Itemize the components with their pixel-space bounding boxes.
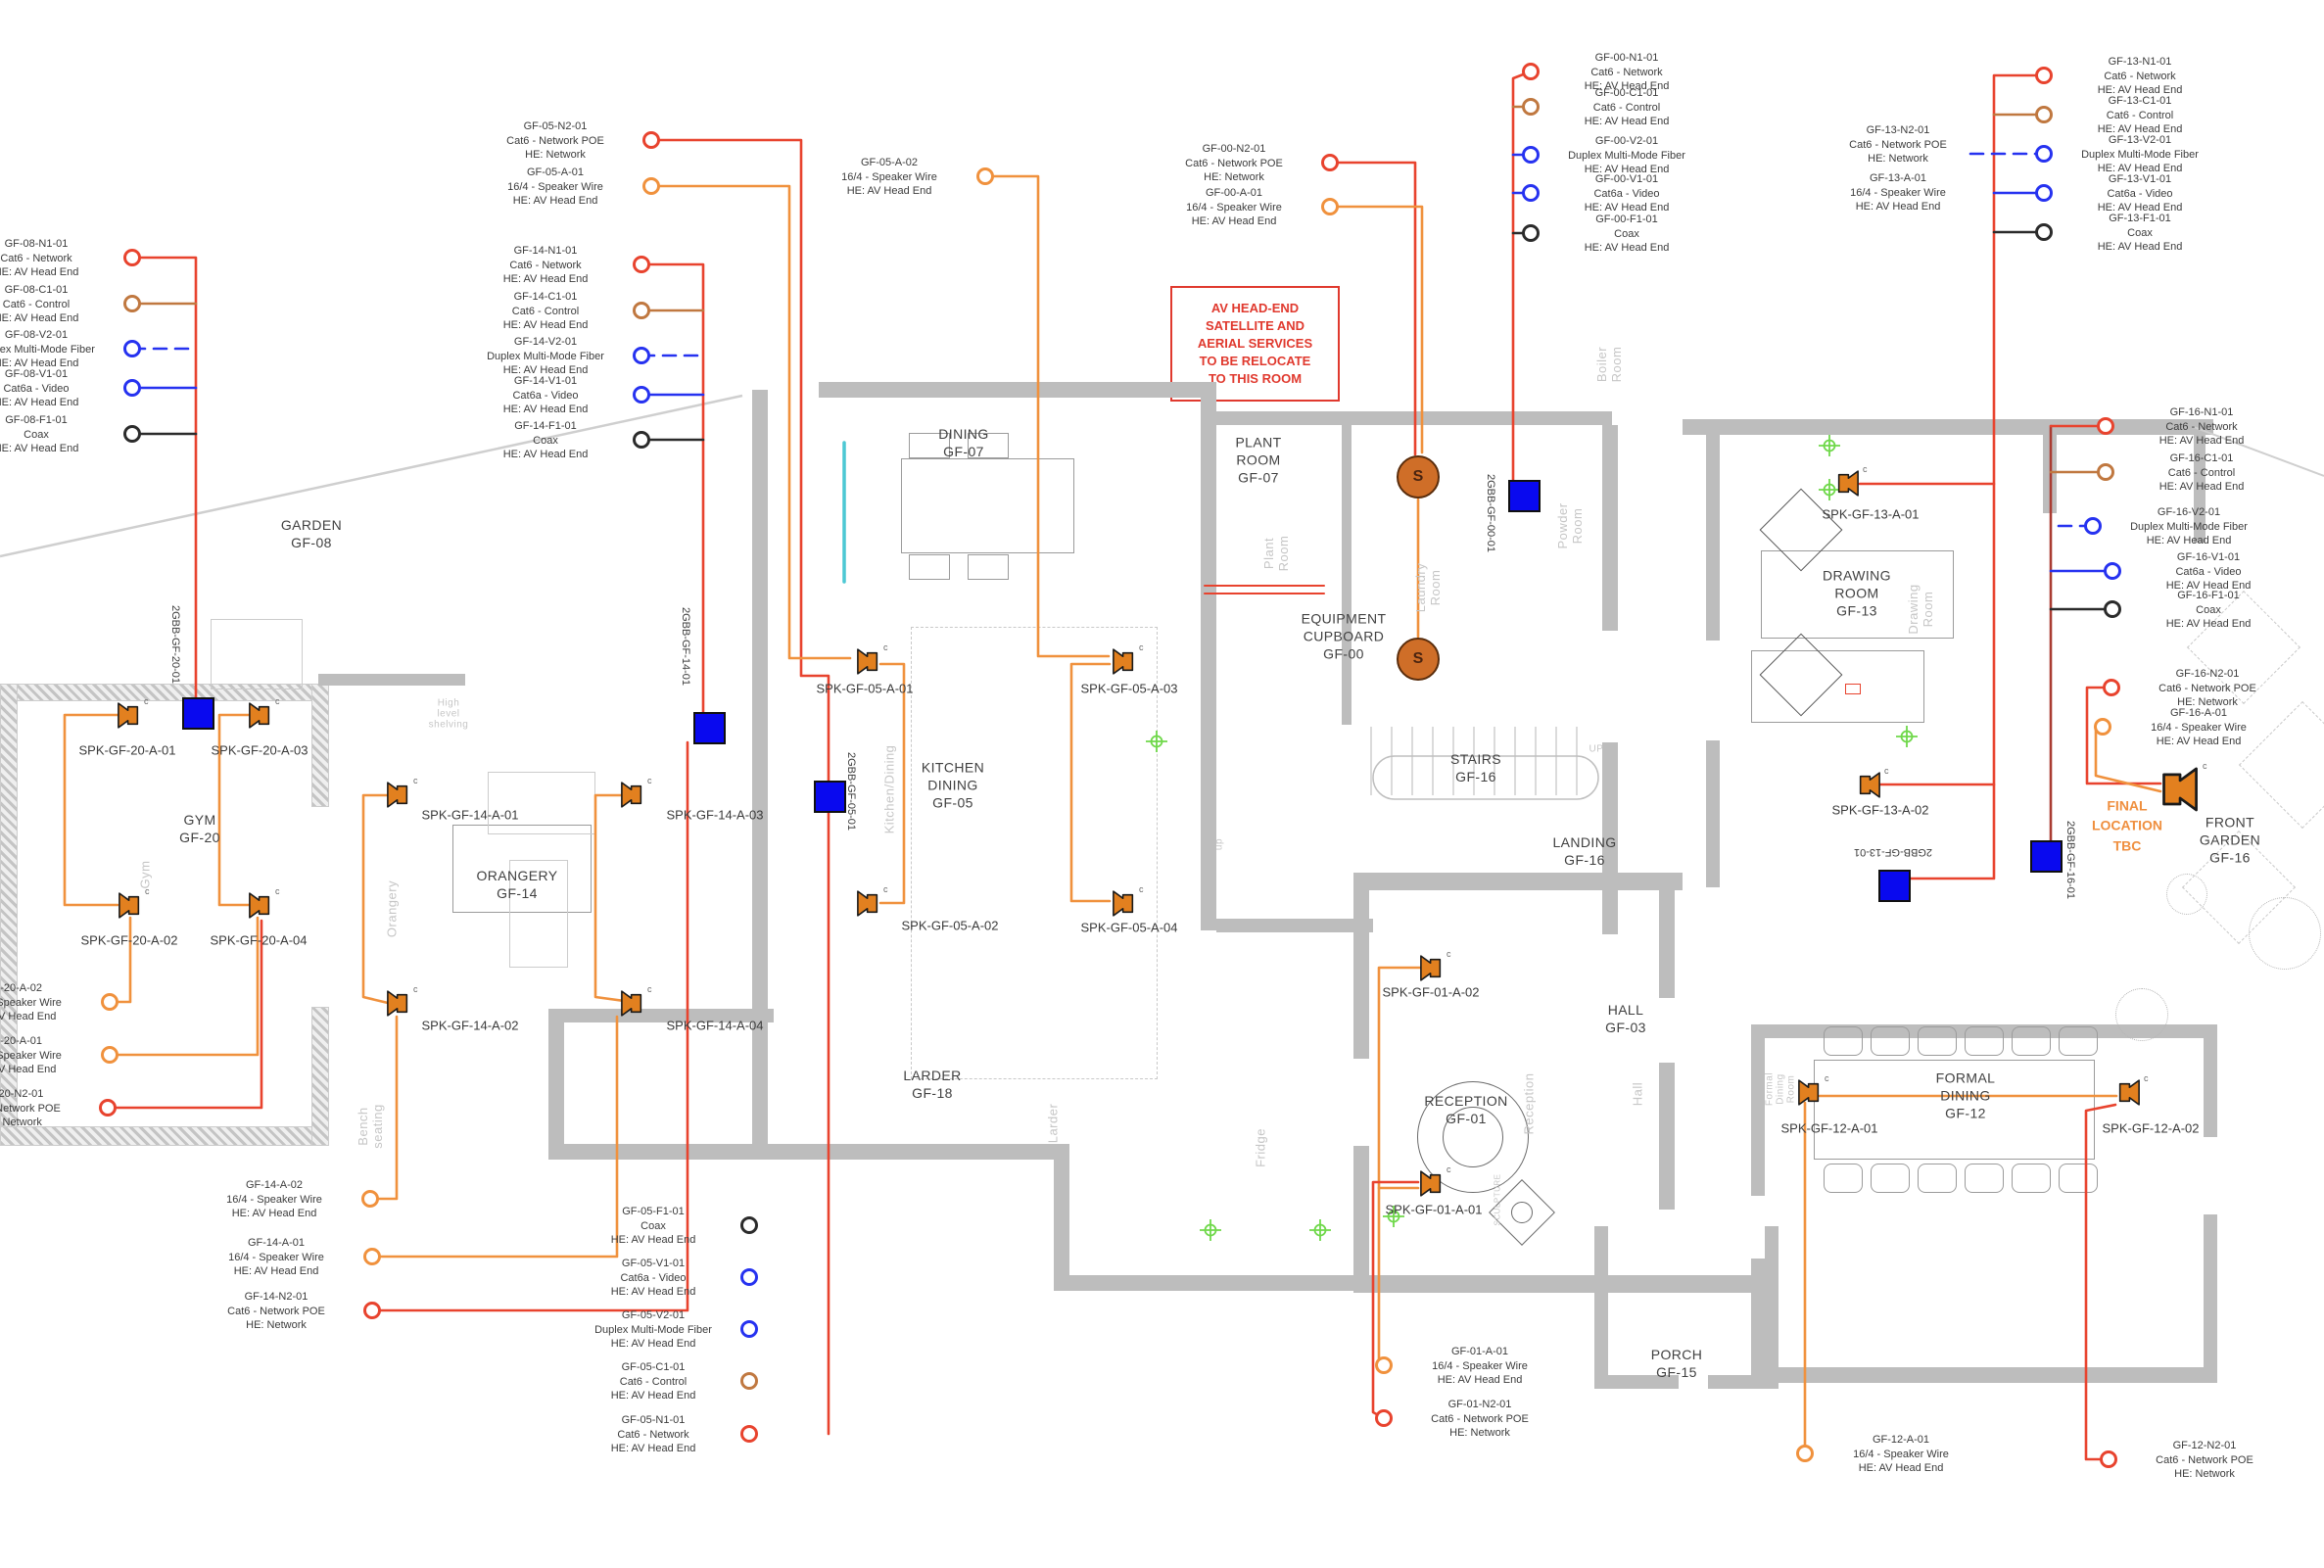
callout-terminal-GF-13-V2-01	[2035, 145, 2053, 163]
panel-2GBB-GF-16-01	[2030, 840, 2063, 873]
callout-GF-00-V2-01: GF-00-V2-01 Duplex Multi-Mode Fiber HE: …	[1543, 134, 1710, 177]
callout-terminal-GF-00-V1-01	[1522, 184, 1540, 202]
speaker-label-SPK-GF-20-A-01: SPK-GF-20-A-01	[79, 743, 176, 758]
panel-label-2GBB-GF-14-01: 2GBB-GF-14-01	[680, 607, 691, 686]
cable-run	[1071, 664, 1110, 901]
callout-terminal-GF-14-N2-01	[363, 1302, 381, 1319]
speaker-label-SPK-GF-05-A-01: SPK-GF-05-A-01	[817, 682, 914, 696]
wiring-layer	[0, 0, 2324, 1568]
callout-terminal-GF-05-F1-01	[740, 1216, 758, 1234]
speaker-circuit-mark: c	[144, 696, 149, 706]
callout-terminal-GF-16-V2-01	[2084, 517, 2102, 535]
room-label-garden: GARDEN GF-08	[281, 516, 342, 551]
callout-GF-16-C1-01: GF-16-C1-01 Cat6 - Control HE: AV Head E…	[2118, 451, 2285, 495]
speaker-SPK-GF-05-A-01: c	[857, 648, 879, 675]
speaker-SPK-GF-20-A-03: c	[249, 702, 271, 729]
room-label-hall: HALL GF-03	[1605, 1001, 1646, 1036]
speaker-label-SPK-GF-01-A-02: SPK-GF-01-A-02	[1383, 985, 1480, 1000]
speaker-circuit-mark: c	[275, 696, 280, 706]
cable-run	[119, 918, 130, 1002]
cable-run	[1379, 968, 1422, 1188]
callout-terminal-GF-14-A-01	[363, 1248, 381, 1265]
callout-GF-14-A-02: GF-14-A-02 16/4 - Speaker Wire HE: AV He…	[191, 1178, 357, 1221]
speaker-SPK-GF-01-A-02: c	[1420, 955, 1443, 981]
speaker-SPK-GF-13-A-02: c	[1858, 772, 1880, 798]
room-label-landing: LANDING GF-16	[1552, 833, 1616, 869]
callout-GF-05-F1-01: GF-05-F1-01 Coax HE: AV Head End	[570, 1205, 736, 1248]
speaker-circuit-mark: c	[413, 984, 418, 994]
satellite-node-2: S	[1397, 638, 1440, 681]
architect-label: Hall	[1631, 1082, 1645, 1106]
architect-label: Kitchen/Dining	[882, 745, 897, 834]
callout-GF-13-F1-01: GF-13-F1-01 Coax HE: AV Head End	[2057, 212, 2223, 255]
floor-plan-canvas: AV HEAD-END SATELLITE AND AERIAL SERVICE…	[0, 0, 2324, 1568]
callout-GF-13-N2-01: GF-13-N2-01 Cat6 - Network POE HE: Netwo…	[1815, 123, 1981, 166]
room-label-porch: PORCH GF-15	[1651, 1346, 1703, 1381]
callout-GF-00-F1-01: GF-00-F1-01 Coax HE: AV Head End	[1543, 213, 1710, 256]
speaker-icon	[1420, 1170, 1443, 1197]
panel-label-2GBB-GF-00-01: 2GBB-GF-00-01	[1485, 474, 1496, 552]
callout-GF-05-A-01: GF-05-A-01 16/4 - Speaker Wire HE: AV He…	[472, 166, 639, 209]
callout-GF-12-A-01: GF-12-A-01 16/4 - Speaker Wire HE: AV He…	[1818, 1433, 1984, 1476]
callout-terminal-GF-12-A-01	[1796, 1445, 1814, 1462]
cable-run	[1379, 1188, 1384, 1365]
speaker-icon	[621, 782, 643, 808]
callout-terminal-GF-20-N2-01	[99, 1099, 117, 1117]
callout-terminal-GF-16-F1-01	[2104, 600, 2121, 618]
callout-terminal-GF-13-N1-01	[2035, 67, 2053, 84]
room-label-dining: DINING GF-07	[938, 425, 988, 460]
callout-terminal-GF-08-V2-01	[123, 340, 141, 357]
callout-terminal-GF-13-F1-01	[2035, 223, 2053, 241]
callout-terminal-GF-13-V1-01	[2035, 184, 2053, 202]
architect-label: Larder	[1046, 1104, 1061, 1144]
speaker-circuit-mark: c	[1447, 1164, 1451, 1174]
callout-GF-05-C1-01: GF-05-C1-01 Cat6 - Control HE: AV Head E…	[570, 1360, 736, 1403]
callout-GF-16-A-01: GF-16-A-01 16/4 - Speaker Wire HE: AV He…	[2115, 706, 2282, 749]
architect-label: UP	[1589, 744, 1604, 755]
room-label-kitchen-dining: KITCHEN DINING GF-05	[922, 759, 984, 813]
architect-label: SCULPTURE	[1494, 1174, 1502, 1226]
speaker-circuit-mark: c	[647, 984, 652, 994]
room-label-front-garden: FRONT GARDEN GF-16	[2200, 814, 2260, 868]
speaker-SPK-GF-20-A-01: c	[118, 702, 140, 729]
speaker-label-SPK-GF-01-A-01: SPK-GF-01-A-01	[1386, 1203, 1483, 1217]
speaker-circuit-mark: c	[2144, 1073, 2149, 1083]
callout-GF-16-N2-01: GF-16-N2-01 Cat6 - Network POE HE: Netwo…	[2124, 667, 2291, 710]
callout-terminal-GF-16-V1-01	[2104, 562, 2121, 580]
speaker-label-SPK-GF-20-A-04: SPK-GF-20-A-04	[211, 933, 308, 948]
speaker-circuit-mark: c	[2203, 761, 2207, 771]
callout-GF-14-V2-01: GF-14-V2-01 Duplex Multi-Mode Fiber HE: …	[462, 335, 629, 378]
speaker-icon	[1420, 955, 1443, 981]
callout-GF-12-N2-01: GF-12-N2-01 Cat6 - Network POE HE: Netwo…	[2121, 1439, 2288, 1482]
room-label-stairs: STAIRS GF-16	[1450, 750, 1501, 785]
callout-terminal-GF-00-N1-01	[1522, 63, 1540, 80]
callout-GF-08-V1-01: GF-08-V1-01 Cat6a - Video HE: AV Head En…	[0, 367, 119, 410]
room-label-reception: RECEPTION GF-01	[1424, 1092, 1507, 1127]
callout-terminal-GF-16-C1-01	[2097, 463, 2114, 481]
speaker-label-SPK-GF-14-A-03: SPK-GF-14-A-03	[667, 808, 764, 823]
callout-GF-08-N1-01: GF-08-N1-01 Cat6 - Network HE: AV Head E…	[0, 237, 119, 280]
callout-GF-16-N1-01: GF-16-N1-01 Cat6 - Network HE: AV Head E…	[2118, 405, 2285, 449]
speaker-circuit-mark: c	[883, 884, 888, 894]
speaker-icon	[249, 892, 271, 919]
architect-label: Reception	[1522, 1072, 1537, 1134]
callout-terminal-GF-16-N1-01	[2097, 417, 2114, 435]
callout-GF-13-N1-01: GF-13-N1-01 Cat6 - Network HE: AV Head E…	[2057, 55, 2223, 98]
room-label-orangery: ORANGERY GF-14	[476, 867, 557, 902]
callout-terminal-GF-13-C1-01	[2035, 106, 2053, 123]
speaker-label-SPK-GF-20-A-02: SPK-GF-20-A-02	[81, 933, 178, 948]
cable-run	[132, 258, 196, 697]
callout-GF-13-V2-01: GF-13-V2-01 Duplex Multi-Mode Fiber HE: …	[2057, 133, 2223, 176]
callout-GF-14-N1-01: GF-14-N1-01 Cat6 - Network HE: AV Head E…	[462, 244, 629, 287]
callout-GF-00-C1-01: GF-00-C1-01 Cat6 - Control HE: AV Head E…	[1543, 86, 1710, 129]
callout-terminal-GF-20-A-02	[101, 993, 119, 1011]
speaker-label-SPK-GF-13-A-02: SPK-GF-13-A-02	[1832, 803, 1929, 818]
callout-terminal-GF-00-C1-01	[1522, 98, 1540, 116]
architect-label: Boiler Room	[1594, 347, 1624, 383]
callout-terminal-GF-05-V2-01	[740, 1320, 758, 1338]
satellite-node-1: S	[1397, 455, 1440, 499]
callout-GF-16-V1-01: GF-16-V1-01 Cat6a - Video HE: AV Head En…	[2125, 550, 2292, 594]
speaker-icon	[387, 990, 409, 1017]
callout-terminal-GF-14-N1-01	[633, 256, 650, 273]
architect-label: Plant Room	[1261, 536, 1291, 572]
callout-GF-13-C1-01: GF-13-C1-01 Cat6 - Control HE: AV Head E…	[2057, 94, 2223, 137]
callout-terminal-GF-16-A-01	[2094, 718, 2111, 736]
callout-GF-05-N2-01: GF-05-N2-01 Cat6 - Network POE HE: Netwo…	[472, 119, 639, 163]
callout-GF-20-A-02: GF-20-A-02 16/4 - Speaker Wire HE: AV He…	[0, 981, 97, 1024]
callout-terminal-GF-00-A-01	[1321, 198, 1339, 215]
architect-label: Laundry Room	[1413, 563, 1443, 612]
speaker-SPK-GF-13-A-01: c	[1836, 470, 1859, 497]
callout-GF-05-N1-01: GF-05-N1-01 Cat6 - Network HE: AV Head E…	[570, 1413, 736, 1456]
architect-label: High level shelving	[429, 698, 469, 731]
callout-terminal-GF-05-V1-01	[740, 1268, 758, 1286]
speaker-SPK-GF-05-A-03: c	[1113, 648, 1135, 675]
panel-2GBB-GF-14-01	[693, 712, 726, 744]
callout-terminal-GF-08-N1-01	[123, 249, 141, 266]
speaker-icon	[1113, 648, 1135, 675]
architect-label: Fridge	[1254, 1128, 1268, 1167]
room-label-plant-room: PLANT ROOM GF-07	[1235, 434, 1281, 488]
callout-GF-08-F1-01: GF-08-F1-01 Coax HE: AV Head End	[0, 413, 119, 456]
speaker-circuit-mark: c	[1884, 766, 1889, 776]
callout-GF-00-V1-01: GF-00-V1-01 Cat6a - Video HE: AV Head En…	[1543, 172, 1710, 215]
panel-label-2GBB-GF-16-01: 2GBB-GF-16-01	[2064, 821, 2076, 899]
panel-label-2GBB-GF-13-01: 2GBB-GF-13-01	[1854, 846, 1932, 858]
callout-terminal-GF-16-N2-01	[2103, 679, 2120, 696]
architect-label: Formal Dining Room	[1765, 1072, 1797, 1106]
callout-GF-14-V1-01: GF-14-V1-01 Cat6a - Video HE: AV Head En…	[462, 374, 629, 417]
cable-run	[651, 186, 850, 658]
speaker-circuit-mark: c	[1139, 642, 1144, 652]
panel-2GBB-GF-05-01	[814, 781, 846, 813]
speaker-circuit-mark: c	[647, 776, 652, 785]
speaker-circuit-mark: c	[413, 776, 418, 785]
speaker-SPK-GF-12-A-01: c	[1798, 1079, 1821, 1106]
callout-terminal-GF-05-N2-01	[642, 131, 660, 149]
speaker-label-SPK-GF-14-A-04: SPK-GF-14-A-04	[667, 1019, 764, 1033]
callout-GF-01-A-01: GF-01-A-01 16/4 - Speaker Wire HE: AV He…	[1397, 1345, 1563, 1388]
speaker-circuit-mark: c	[883, 642, 888, 652]
panel-2GBB-GF-20-01	[182, 697, 214, 730]
speaker-SPK-GF-20-A-04: c	[249, 892, 271, 919]
speaker-SPK-GF-12-A-02: c	[2117, 1079, 2140, 1106]
speaker-icon	[2159, 767, 2198, 812]
speaker-label-SPK-GF-14-A-02: SPK-GF-14-A-02	[422, 1019, 519, 1033]
callout-GF-14-A-01: GF-14-A-01 16/4 - Speaker Wire HE: AV He…	[193, 1236, 359, 1279]
callout-terminal-GF-20-A-01	[101, 1046, 119, 1064]
panel-2GBB-GF-00-01	[1508, 480, 1541, 512]
speaker-SPK-GF-14-A-01: c	[387, 782, 409, 808]
cable-run	[1332, 207, 1422, 452]
speaker-circuit-mark: c	[1447, 949, 1451, 959]
speaker-icon	[1113, 890, 1135, 917]
speaker-SPK-GF-01-A-01: c	[1420, 1170, 1443, 1197]
callout-terminal-GF-14-V1-01	[633, 386, 650, 404]
speaker-circuit-mark: c	[275, 886, 280, 896]
speaker-label-SPK-GF-13-A-01: SPK-GF-13-A-01	[1823, 507, 1920, 522]
speaker-SPK-GF-14-A-03: c	[621, 782, 643, 808]
speaker-icon	[2117, 1079, 2140, 1106]
callout-GF-16-F1-01: GF-16-F1-01 Coax HE: AV Head End	[2125, 589, 2292, 632]
cable-run	[2086, 1105, 2115, 1459]
room-label-equipment-cupboard: EQUIPMENT CUPBOARD GF-00	[1302, 610, 1387, 664]
callout-terminal-GF-14-A-02	[361, 1190, 379, 1208]
speaker-icon	[1858, 772, 1880, 798]
architect-label: Orangery	[385, 880, 400, 937]
callout-terminal-GF-14-C1-01	[633, 302, 650, 319]
callout-GF-13-V1-01: GF-13-V1-01 Cat6a - Video HE: AV Head En…	[2057, 172, 2223, 215]
cable-run	[1513, 71, 1531, 480]
callout-GF-05-V1-01: GF-05-V1-01 Cat6a - Video HE: AV Head En…	[570, 1257, 736, 1300]
callout-terminal-GF-08-V1-01	[123, 379, 141, 397]
speaker-icon	[119, 892, 141, 919]
callout-GF-08-V2-01: GF-08-V2-01 Duplex Multi-Mode Fiber HE: …	[0, 328, 119, 371]
speaker-circuit-mark: c	[1139, 884, 1144, 894]
callout-terminal-GF-00-F1-01	[1522, 224, 1540, 242]
callout-GF-14-N2-01: GF-14-N2-01 Cat6 - Network POE HE: Netwo…	[193, 1290, 359, 1333]
speaker-SPK-GF-14-A-02: c	[387, 990, 409, 1017]
speaker-label-SPK-GF-05-A-04: SPK-GF-05-A-04	[1081, 921, 1178, 935]
panel-label-2GBB-GF-05-01: 2GBB-GF-05-01	[845, 752, 857, 831]
callout-terminal-GF-08-F1-01	[123, 425, 141, 443]
cable-run	[985, 176, 1109, 656]
cable-run	[651, 140, 829, 781]
speaker-icon	[857, 890, 879, 917]
callout-GF-20-N2-01: GF-20-N2-01 Cat6 - Network POE HE: Netwo…	[0, 1087, 95, 1130]
speaker-SPK-GF-05-A-04: c	[1113, 890, 1135, 917]
speaker-icon	[1798, 1079, 1821, 1106]
speaker-circuit-mark: c	[1825, 1073, 1829, 1083]
callout-terminal-GF-00-N2-01	[1321, 154, 1339, 171]
panel-label-2GBB-GF-20-01: 2GBB-GF-20-01	[169, 605, 181, 684]
callout-terminal-GF-05-C1-01	[740, 1372, 758, 1390]
callout-terminal-GF-01-N2-01	[1375, 1409, 1393, 1427]
speaker-icon	[1836, 470, 1859, 497]
callout-terminal-GF-05-N1-01	[740, 1425, 758, 1443]
callout-GF-16-V2-01: GF-16-V2-01 Duplex Multi-Mode Fiber HE: …	[2106, 505, 2272, 548]
callout-terminal-GF-00-V2-01	[1522, 146, 1540, 164]
callout-terminal-GF-05-A-02	[976, 167, 994, 185]
speaker-icon	[621, 990, 643, 1017]
speaker-label-SPK-GF-20-A-03: SPK-GF-20-A-03	[212, 743, 308, 758]
speaker-SPK-FRONT-GARDEN: c	[2159, 767, 2198, 812]
callout-GF-20-A-01: GF-20-A-01 16/4 - Speaker Wire HE: AV He…	[0, 1034, 97, 1077]
speaker-label-SPK-GF-05-A-03: SPK-GF-05-A-03	[1081, 682, 1178, 696]
callout-GF-05-V2-01: GF-05-V2-01 Duplex Multi-Mode Fiber HE: …	[570, 1308, 736, 1352]
speaker-icon	[249, 702, 271, 729]
panel-2GBB-GF-13-01	[1878, 870, 1911, 902]
speaker-label-SPK-GF-14-A-01: SPK-GF-14-A-01	[422, 808, 519, 823]
speaker-icon	[857, 648, 879, 675]
callout-terminal-GF-05-A-01	[642, 177, 660, 195]
speaker-SPK-GF-05-A-02: c	[857, 890, 879, 917]
room-label-gym: GYM GF-20	[179, 811, 220, 846]
speaker-circuit-mark: c	[1863, 464, 1868, 474]
architect-label: Drawing Room	[1906, 584, 1935, 634]
architect-label: Powder Room	[1555, 502, 1585, 548]
speaker-label-SPK-GF-05-A-02: SPK-GF-05-A-02	[902, 919, 999, 933]
callout-GF-13-A-01: GF-13-A-01 16/4 - Speaker Wire HE: AV He…	[1815, 171, 1981, 214]
callout-terminal-GF-14-V2-01	[633, 347, 650, 364]
speaker-SPK-GF-20-A-02: c	[119, 892, 141, 919]
callout-GF-01-N2-01: GF-01-N2-01 Cat6 - Network POE HE: Netwo…	[1397, 1398, 1563, 1441]
cable-run	[595, 795, 624, 1001]
architect-label: up	[1214, 838, 1225, 850]
callout-GF-14-F1-01: GF-14-F1-01 Coax HE: AV Head End	[462, 419, 629, 462]
speaker-icon	[387, 782, 409, 808]
room-label-larder: LARDER GF-18	[903, 1067, 961, 1102]
callout-terminal-GF-01-A-01	[1375, 1356, 1393, 1374]
speaker-label-SPK-GF-12-A-02: SPK-GF-12-A-02	[2103, 1121, 2200, 1136]
callout-GF-00-A-01: GF-00-A-01 16/4 - Speaker Wire HE: AV He…	[1151, 186, 1317, 229]
speaker-label-SPK-GF-12-A-01: SPK-GF-12-A-01	[1781, 1121, 1878, 1136]
cable-run	[641, 264, 703, 712]
architect-label: Bench seating	[356, 1104, 385, 1148]
callout-GF-05-A-02: GF-05-A-02 16/4 - Speaker Wire HE: AV He…	[806, 156, 972, 199]
room-label-formal-dining: FORMAL DINING GF-12	[1936, 1069, 1996, 1123]
callout-GF-00-N2-01: GF-00-N2-01 Cat6 - Network POE HE: Netwo…	[1151, 142, 1317, 185]
room-label-drawing-room: DRAWING ROOM GF-13	[1823, 567, 1891, 621]
architect-label: Gym	[138, 861, 153, 889]
callout-terminal-GF-12-N2-01	[2100, 1450, 2117, 1468]
callout-GF-14-C1-01: GF-14-C1-01 Cat6 - Control HE: AV Head E…	[462, 290, 629, 333]
callout-terminal-GF-14-F1-01	[633, 431, 650, 449]
callout-GF-08-C1-01: GF-08-C1-01 Cat6 - Control HE: AV Head E…	[0, 283, 119, 326]
speaker-icon	[118, 702, 140, 729]
callout-terminal-GF-08-C1-01	[123, 295, 141, 312]
speaker-SPK-GF-14-A-04: c	[621, 990, 643, 1017]
